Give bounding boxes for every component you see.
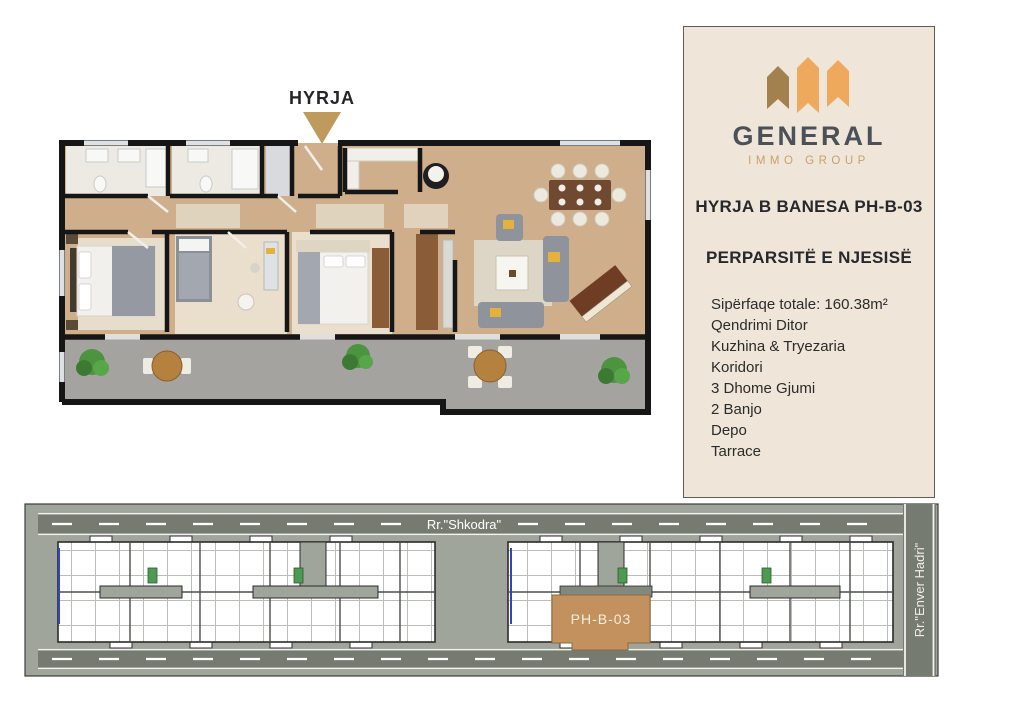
feature-item: Tarrace xyxy=(711,441,934,462)
apartment-floorplan xyxy=(60,141,651,413)
entrance-arrow-icon xyxy=(303,112,341,144)
general-immo-logo-icon xyxy=(767,57,851,113)
elevator-core xyxy=(762,568,771,583)
unit-title: HYRJA B BANESA PH-B-03 xyxy=(684,197,934,217)
feature-item: Kuzhina & Tryezaria xyxy=(711,336,934,357)
feature-item: Depo xyxy=(711,420,934,441)
street-label-top: Rr."Shkodra" xyxy=(427,517,502,532)
feature-item: 3 Dhome Gjumi xyxy=(711,378,934,399)
feature-item: Qendrimi Ditor xyxy=(711,315,934,336)
entrance-label: HYRJA xyxy=(289,88,355,108)
highlighted-unit: PH-B-03 xyxy=(552,586,652,650)
brand-subtitle: IMMO GROUP xyxy=(684,155,934,167)
feature-list: Sipërfaqe totale: 160.38m² Qendrimi Dito… xyxy=(684,294,934,462)
master-bedroom-furniture xyxy=(66,234,168,330)
site-building-a xyxy=(58,536,435,648)
brand-name: GENERAL xyxy=(684,122,934,150)
brochure-page: HYRJA xyxy=(0,0,1010,716)
feature-item: Sipërfaqe totale: 160.38m² xyxy=(711,294,934,315)
elevator-core xyxy=(294,568,303,583)
bedroom3-furniture xyxy=(296,240,389,328)
entrance-marker: HYRJA xyxy=(289,88,355,144)
feature-item: Koridori xyxy=(711,357,934,378)
street-label-right: Rr."Enver Hadri" xyxy=(912,542,927,637)
unit-label: PH-B-03 xyxy=(571,611,632,627)
features-heading: PERPARSITË E NJESISË xyxy=(684,248,934,268)
closet-floor xyxy=(266,146,292,196)
elevator-core xyxy=(618,568,627,583)
closet-wardrobes xyxy=(416,234,453,330)
info-panel: GENERAL IMMO GROUP HYRJA B BANESA PH-B-0… xyxy=(683,26,935,498)
site-plan: Rr."Shkodra" Rr."Enver Hadri" xyxy=(25,504,938,676)
feature-item: 2 Banjo xyxy=(711,399,934,420)
site-building-b: PH-B-03 xyxy=(508,536,893,650)
elevator-core xyxy=(148,568,157,583)
